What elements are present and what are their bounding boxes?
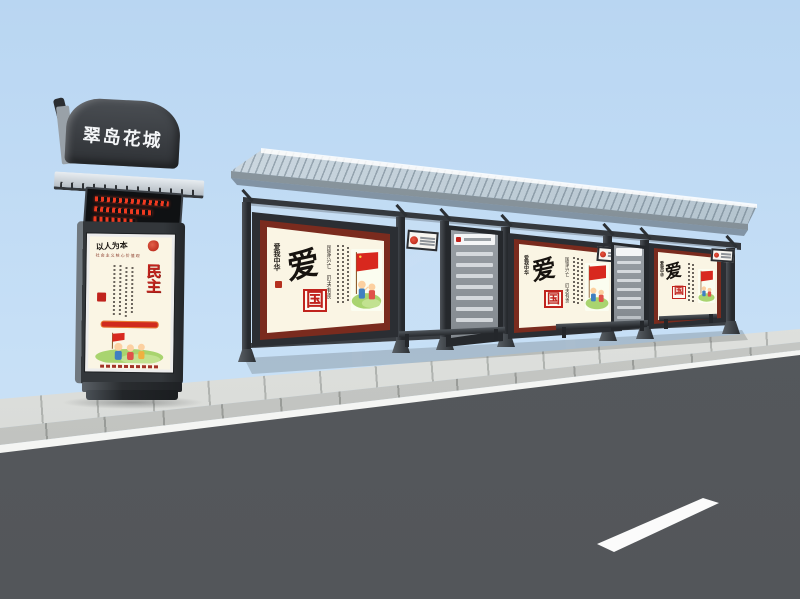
poster-calligraphy: 爱我中华	[523, 255, 528, 275]
route-row	[456, 307, 493, 311]
route-footer	[617, 316, 641, 319]
route-row	[456, 318, 493, 322]
station-plaque-3	[711, 248, 735, 263]
poster-char-main: 爱	[664, 261, 682, 282]
poster-text-column	[337, 245, 339, 305]
route-row	[617, 261, 641, 264]
route-board-2-panel	[614, 245, 644, 326]
route-board-header	[454, 234, 495, 245]
led-text-row	[95, 196, 169, 206]
plaque-emblem-icon	[714, 252, 719, 257]
poster-text-column	[113, 265, 116, 317]
poster-patriotism-1: 爱我中华 爱 国 国家兴亡 匹夫有责	[267, 227, 384, 333]
poster-text-column	[581, 259, 583, 303]
poster-quote: 国家兴亡 匹夫有责	[564, 257, 569, 311]
route-board-logo	[456, 237, 461, 242]
poster-char-boxed: 国	[672, 286, 686, 299]
poster-cartoon	[351, 237, 382, 323]
poster-title: 民主	[145, 263, 160, 293]
poster-seal	[275, 281, 282, 288]
poster-char-boxed: 国	[303, 289, 327, 312]
bench-leg	[494, 329, 498, 341]
poster-text-column	[577, 258, 579, 304]
route-row	[617, 279, 641, 282]
poster-text-column	[342, 245, 344, 303]
plaque-emblem-icon	[600, 251, 607, 258]
pylon-header-sign: 翠岛花城	[64, 97, 181, 169]
poster-text-column	[119, 265, 122, 317]
poster-seal	[97, 293, 106, 302]
poster-text-column	[573, 257, 575, 305]
route-row	[456, 285, 493, 289]
bench-leg	[562, 327, 566, 338]
bench-leg	[640, 321, 644, 331]
route-row	[456, 252, 493, 256]
pylon-sign-text: 翠岛花城	[65, 120, 181, 155]
poster-patriotism-3: 爱我中华 爱 国	[658, 252, 717, 320]
poster-cartoon	[92, 330, 166, 363]
route-row	[617, 297, 641, 300]
poster-char-main: 爱	[286, 246, 321, 285]
route-board-header	[616, 248, 642, 256]
route-board-1-panel	[451, 230, 498, 338]
route-board-title-bar	[464, 238, 491, 241]
poster-char-boxed: 国	[544, 290, 563, 308]
bus-shelter-render: 爱我中华 爱 国 国家兴亡 匹夫有责	[0, 0, 800, 599]
station-plaque-1	[406, 230, 439, 252]
poster-calligraphy: 以人为本	[96, 240, 129, 253]
bench-leg	[664, 319, 668, 329]
shelter-post	[242, 202, 251, 360]
pylon-lightbox-window: 以人为本 社会主义核心价值观 民主	[85, 233, 175, 372]
poster-calligraphy: 爱我中华	[273, 243, 280, 271]
poster-cartoon	[585, 253, 609, 321]
poster-quote: 国家兴亡 匹夫有责	[325, 245, 331, 317]
bench-leg	[405, 334, 409, 347]
route-row	[456, 296, 493, 300]
poster-text-column	[131, 267, 134, 315]
poster-flower-seal	[148, 240, 159, 251]
poster-banner	[101, 321, 159, 329]
poster-text-column	[125, 267, 128, 317]
plaque-text-lines	[721, 253, 731, 259]
poster-text-column	[688, 263, 690, 303]
route-row	[456, 263, 493, 267]
bench-leg	[709, 314, 713, 323]
plaque-text-lines	[420, 236, 436, 245]
poster-text-column	[692, 264, 694, 302]
poster-caption	[100, 365, 158, 369]
poster-char-main: 爱	[531, 257, 557, 286]
plaque-emblem-icon	[410, 235, 419, 244]
led-text-row	[94, 206, 152, 215]
route-row	[617, 288, 641, 291]
route-row	[456, 274, 493, 278]
poster-cartoon	[698, 260, 715, 312]
pylon-base-lower	[86, 390, 178, 400]
route-row	[617, 270, 641, 273]
poster-subtitle: 社会主义核心价值观	[96, 253, 141, 260]
route-row	[617, 306, 641, 309]
poster-text-column	[347, 247, 349, 303]
